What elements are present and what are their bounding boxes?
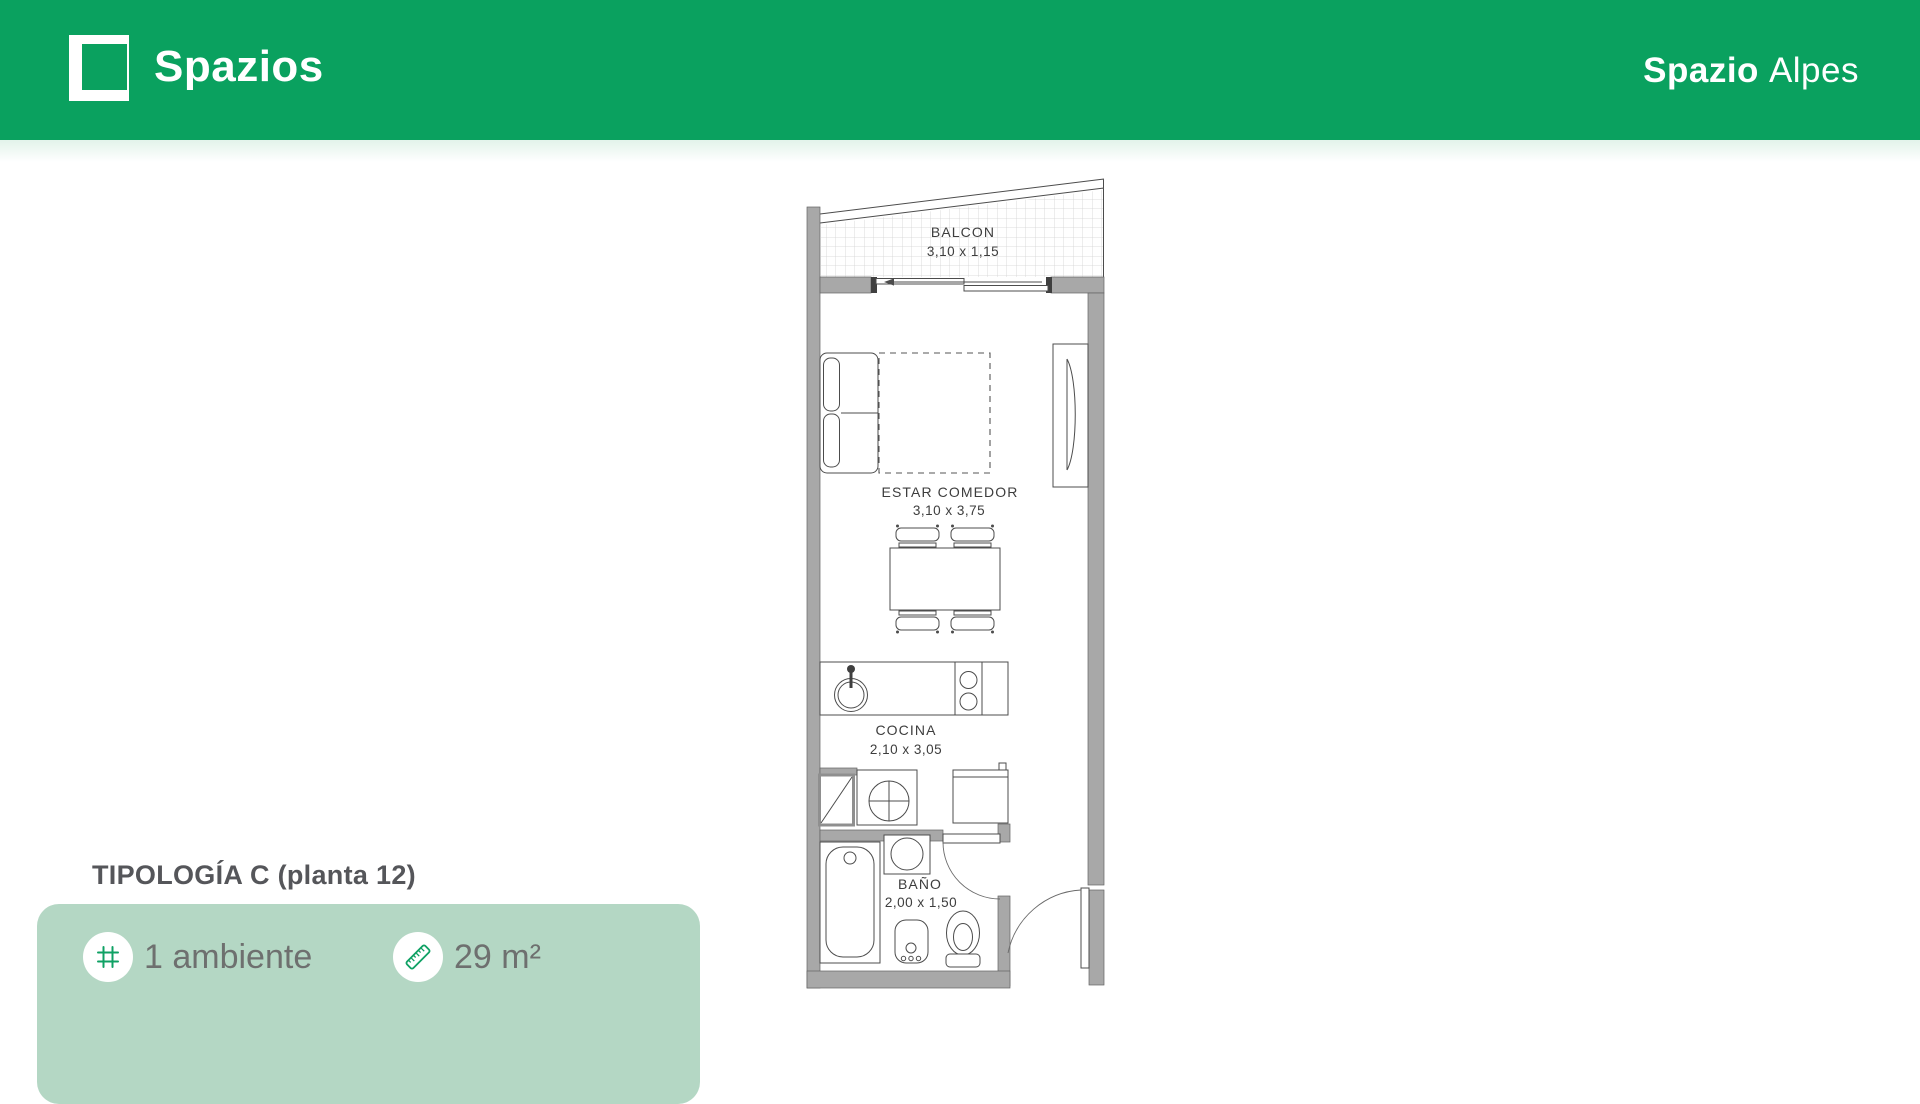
room-name-estar-comedor: ESTAR COMEDOR xyxy=(882,484,1019,500)
sofa xyxy=(820,353,878,473)
room-name-balcon: BALCON xyxy=(931,224,995,240)
laundry-counter xyxy=(953,763,1008,823)
typology-title: TIPOLOGÍA C (planta 12) xyxy=(92,860,416,891)
room-name-cocina: COCINA xyxy=(875,722,936,738)
feature-superficie-label: 29 m² xyxy=(454,932,541,982)
feature-ambientes-label: 1 ambiente xyxy=(144,932,312,982)
entrance-door xyxy=(1008,888,1089,968)
chair xyxy=(951,611,994,634)
room-dims-estar-comedor: 3,10 x 3,75 xyxy=(913,503,985,518)
typology-card: 1 ambiente 29 m² xyxy=(37,904,700,1104)
room-dims-bano: 2,00 x 1,50 xyxy=(885,895,957,910)
grid-icon xyxy=(83,932,133,982)
room-dims-balcon: 3,10 x 1,15 xyxy=(927,244,999,259)
sliding-door xyxy=(876,278,1048,291)
feature-superficie: 29 m² xyxy=(393,932,541,982)
washing-machine xyxy=(857,770,917,825)
dining-table xyxy=(890,548,1000,610)
room-dims-cocina: 2,10 x 3,05 xyxy=(870,742,942,757)
room-name-bano: BAÑO xyxy=(898,876,942,892)
bathtub xyxy=(820,842,880,963)
bathroom-door xyxy=(943,834,1000,899)
feature-ambientes: 1 ambiente xyxy=(83,932,312,982)
chair xyxy=(896,525,939,548)
washbasin xyxy=(884,835,930,874)
ruler-icon xyxy=(393,932,443,982)
chair xyxy=(951,525,994,548)
chair xyxy=(896,611,939,634)
duct-shaft xyxy=(820,775,854,825)
closet xyxy=(1053,344,1088,487)
toilet xyxy=(946,911,980,967)
bidet xyxy=(895,920,928,963)
bed-projection xyxy=(879,353,990,473)
